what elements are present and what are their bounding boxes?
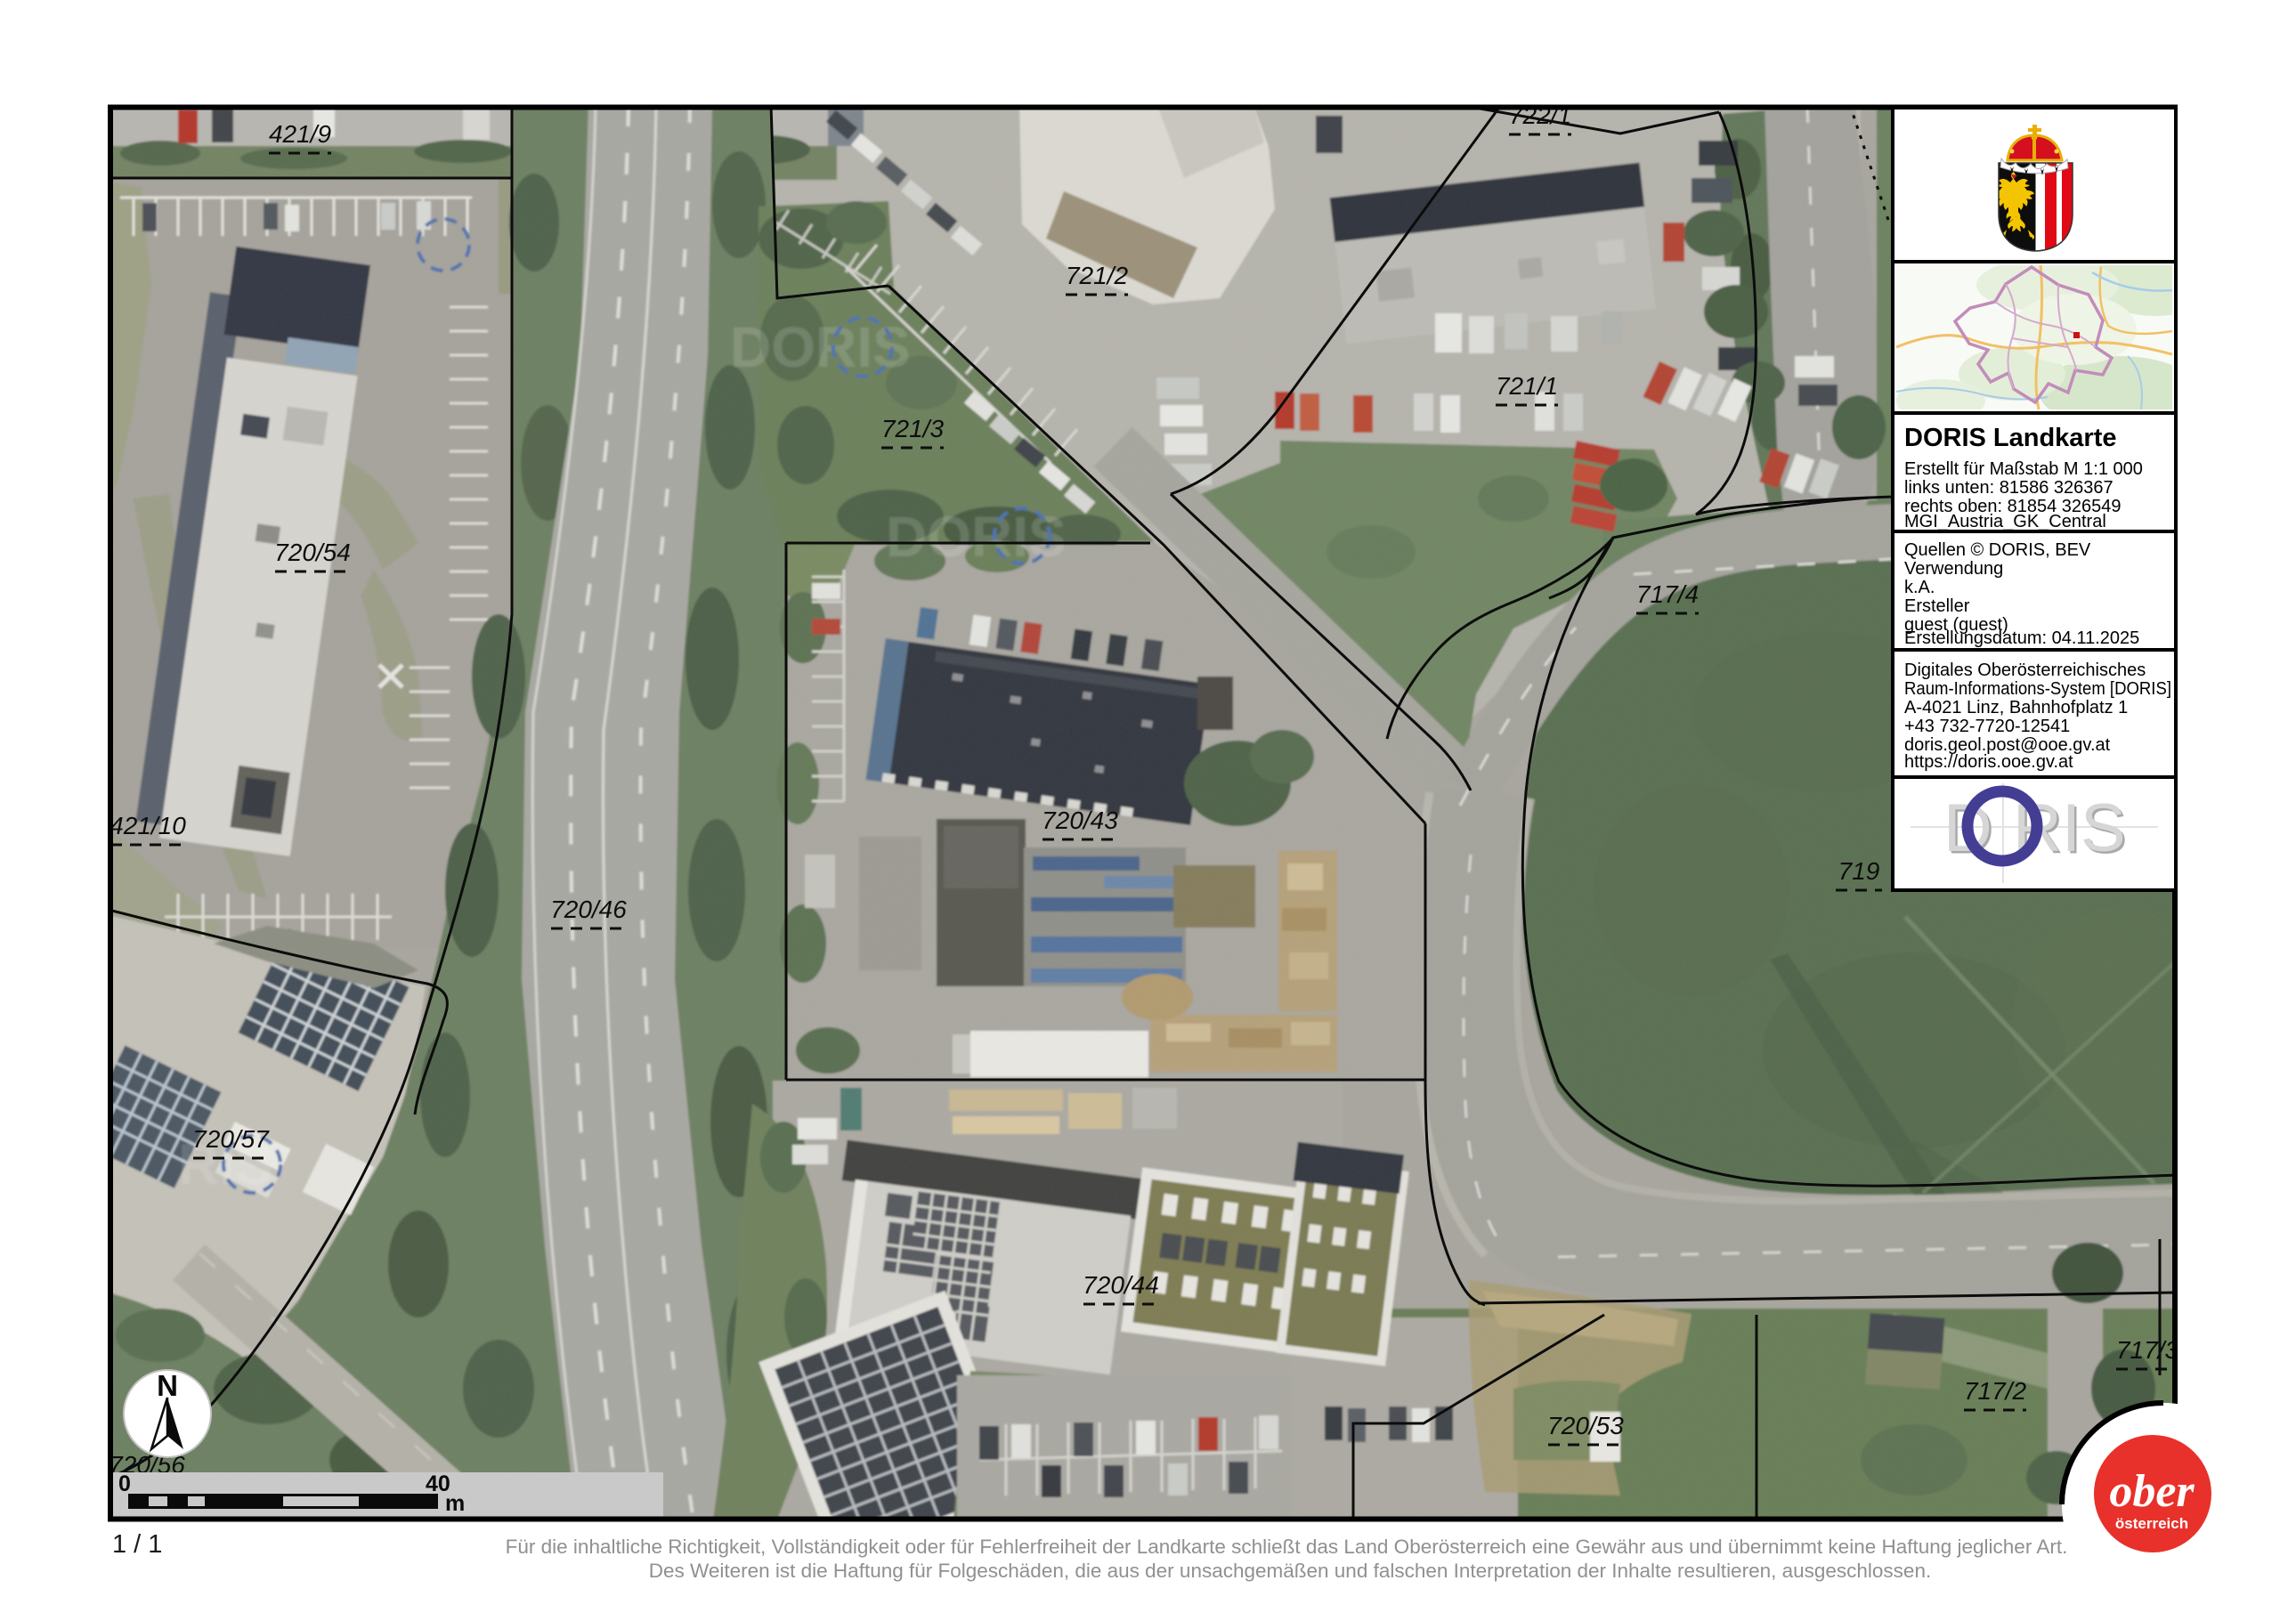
svg-text:720/46: 720/46 <box>550 896 627 923</box>
svg-text:österreich: österreich <box>2115 1515 2188 1532</box>
svg-text:m: m <box>445 1491 465 1516</box>
svg-text:1 / 1: 1 / 1 <box>112 1530 162 1559</box>
svg-text:717/2: 717/2 <box>1964 1377 2026 1405</box>
svg-text:MGI_Austria_GK_Central: MGI_Austria_GK_Central <box>1904 512 2106 531</box>
svg-text:Erstellungsdatum: 04.11.2025: Erstellungsdatum: 04.11.2025 <box>1904 628 2139 648</box>
svg-text:links unten: 81586 326367: links unten: 81586 326367 <box>1904 478 2113 498</box>
svg-text:720/44: 720/44 <box>1083 1271 1159 1299</box>
svg-text:Raum-Informations-System [DORI: Raum-Informations-System [DORIS] <box>1904 679 2171 699</box>
svg-text:720/53: 720/53 <box>1547 1412 1624 1439</box>
svg-text:721/1: 721/1 <box>1496 372 1558 400</box>
svg-text:720/57: 720/57 <box>192 1125 270 1153</box>
svg-text:ober: ober <box>2109 1466 2195 1517</box>
svg-text:N: N <box>157 1369 178 1402</box>
svg-text:Des Weiteren ist die Haftung f: Des Weiteren ist die Haftung für Folgesc… <box>649 1560 1931 1582</box>
svg-text:721/2: 721/2 <box>1066 262 1128 289</box>
svg-text:421/10: 421/10 <box>110 812 186 839</box>
svg-text:719: 719 <box>1838 857 1880 885</box>
svg-text:+43 732-7720-12541: +43 732-7720-12541 <box>1904 717 2070 736</box>
svg-text:Digitales Oberösterreichisches: Digitales Oberösterreichisches <box>1904 661 2146 680</box>
svg-text:720/54: 720/54 <box>274 539 351 566</box>
svg-text:720/43: 720/43 <box>1042 806 1118 834</box>
svg-text:DORIS Landkarte: DORIS Landkarte <box>1904 424 2117 452</box>
svg-text:717/4: 717/4 <box>1636 580 1699 608</box>
svg-text:Für die inhaltliche Richtigkei: Für die inhaltliche Richtigkeit, Vollstä… <box>506 1536 2068 1558</box>
svg-text:Verwendung: Verwendung <box>1904 559 2003 579</box>
svg-text:https://doris.ooe.gv.at: https://doris.ooe.gv.at <box>1904 752 2073 772</box>
svg-text:Ersteller: Ersteller <box>1904 596 1970 616</box>
svg-text:Erstellt für Maßstab M 1:1 000: Erstellt für Maßstab M 1:1 000 <box>1904 459 2143 479</box>
svg-text:0: 0 <box>118 1471 131 1496</box>
svg-text:421/9: 421/9 <box>269 120 331 148</box>
svg-text:717/3: 717/3 <box>2116 1336 2178 1364</box>
svg-text:A-4021 Linz, Bahnhofplatz 1: A-4021 Linz, Bahnhofplatz 1 <box>1904 698 2128 717</box>
svg-text:Quellen © DORIS, BEV: Quellen © DORIS, BEV <box>1904 540 2091 560</box>
svg-text:k.A.: k.A. <box>1904 578 1935 597</box>
svg-text:721/3: 721/3 <box>881 415 944 442</box>
